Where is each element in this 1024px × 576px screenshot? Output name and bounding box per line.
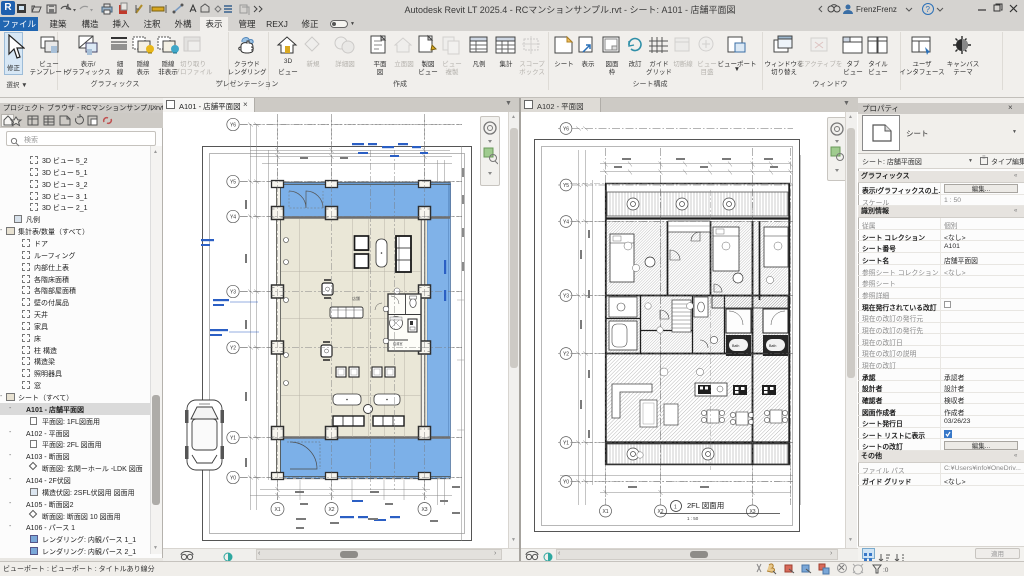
svg-text:X3: X3 (749, 509, 755, 515)
svg-text:Y1: Y1 (230, 436, 236, 442)
svg-text:Bath: Bath (732, 344, 739, 348)
svg-text:Y6: Y6 (563, 127, 569, 133)
svg-text:Y3: Y3 (230, 290, 236, 296)
svg-text:1: 1 (674, 505, 677, 511)
svg-text:Y4: Y4 (230, 215, 236, 221)
svg-text:Y6: Y6 (230, 123, 236, 129)
svg-text:X1: X1 (602, 509, 608, 515)
svg-text:Y2: Y2 (230, 346, 236, 352)
svg-text:Y4: Y4 (563, 220, 569, 226)
svg-text:Y2: Y2 (563, 352, 569, 358)
svg-text:Y1: Y1 (563, 441, 569, 447)
svg-text:?: ? (926, 5, 931, 14)
svg-text:Bath: Bath (769, 344, 776, 348)
svg-text:Y0: Y0 (563, 480, 569, 486)
svg-text:2FL 図面用: 2FL 図面用 (687, 501, 724, 510)
svg-text:X3: X3 (421, 507, 427, 513)
svg-text:X2: X2 (657, 509, 663, 515)
svg-text:Y3: Y3 (563, 294, 569, 300)
svg-text:Y5: Y5 (230, 180, 236, 186)
svg-text:X2: X2 (328, 507, 334, 513)
svg-text:Y0: Y0 (230, 476, 236, 482)
svg-text::0: :0 (883, 567, 889, 574)
svg-text:X1: X1 (274, 507, 280, 513)
svg-text:店舗: 店舗 (352, 295, 360, 301)
svg-text:1 : 50: 1 : 50 (687, 516, 699, 521)
svg-text:FrenzFrenz: FrenzFrenz (856, 5, 897, 14)
svg-text:Y5: Y5 (563, 183, 569, 189)
